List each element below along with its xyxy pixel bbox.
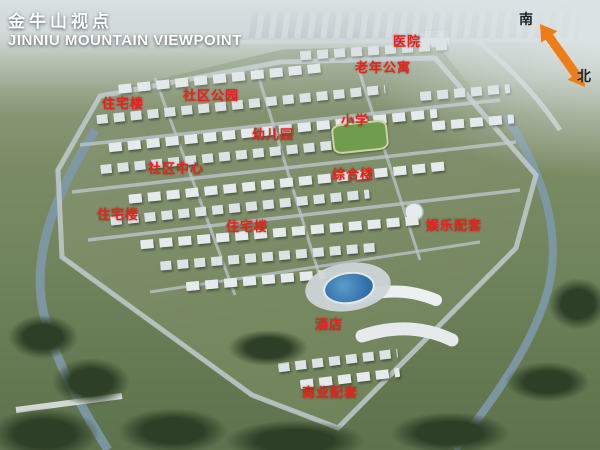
compass-north-label: 北 <box>577 66 591 86</box>
compass-south-label: 南 <box>519 9 533 29</box>
atmospheric-haze <box>0 0 600 450</box>
aerial-masterplan-view: 金牛山视点 JINNIU MOUNTAIN VIEWPOINT 南 北 医院老年… <box>0 0 600 450</box>
viewpoint-title: 金牛山视点 JINNIU MOUNTAIN VIEWPOINT <box>8 12 242 49</box>
title-chinese: 金牛山视点 <box>8 12 242 32</box>
title-english: JINNIU MOUNTAIN VIEWPOINT <box>8 32 242 49</box>
